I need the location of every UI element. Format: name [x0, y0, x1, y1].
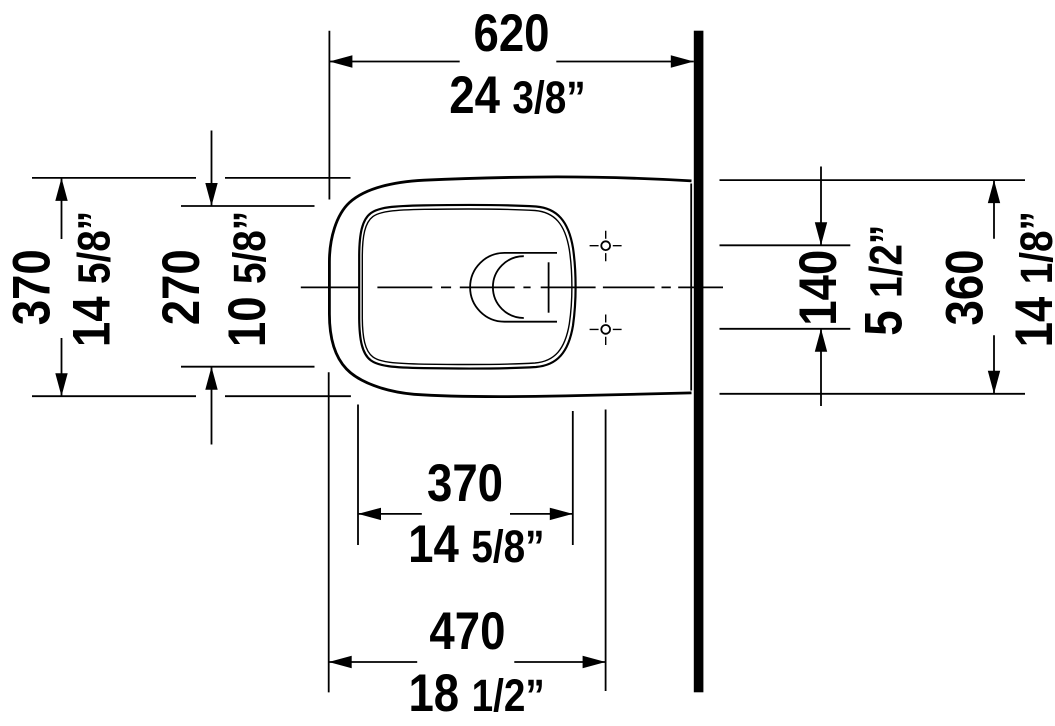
- svg-text:24 3/8”: 24 3/8”: [449, 66, 585, 125]
- svg-text:14 1/8”: 14 1/8”: [1005, 211, 1055, 347]
- svg-text:10 5/8”: 10 5/8”: [218, 211, 277, 347]
- svg-text:270: 270: [152, 249, 211, 325]
- svg-text:140: 140: [789, 250, 848, 326]
- svg-text:14 5/8”: 14 5/8”: [408, 515, 544, 574]
- svg-text:360: 360: [935, 249, 994, 325]
- svg-text:620: 620: [473, 4, 549, 63]
- svg-text:5 1/2”: 5 1/2”: [854, 225, 913, 336]
- svg-text:470: 470: [429, 602, 505, 661]
- svg-text:370: 370: [427, 454, 503, 513]
- svg-text:18 1/2”: 18 1/2”: [408, 664, 544, 723]
- svg-text:14 5/8”: 14 5/8”: [62, 211, 121, 347]
- svg-text:370: 370: [2, 249, 61, 325]
